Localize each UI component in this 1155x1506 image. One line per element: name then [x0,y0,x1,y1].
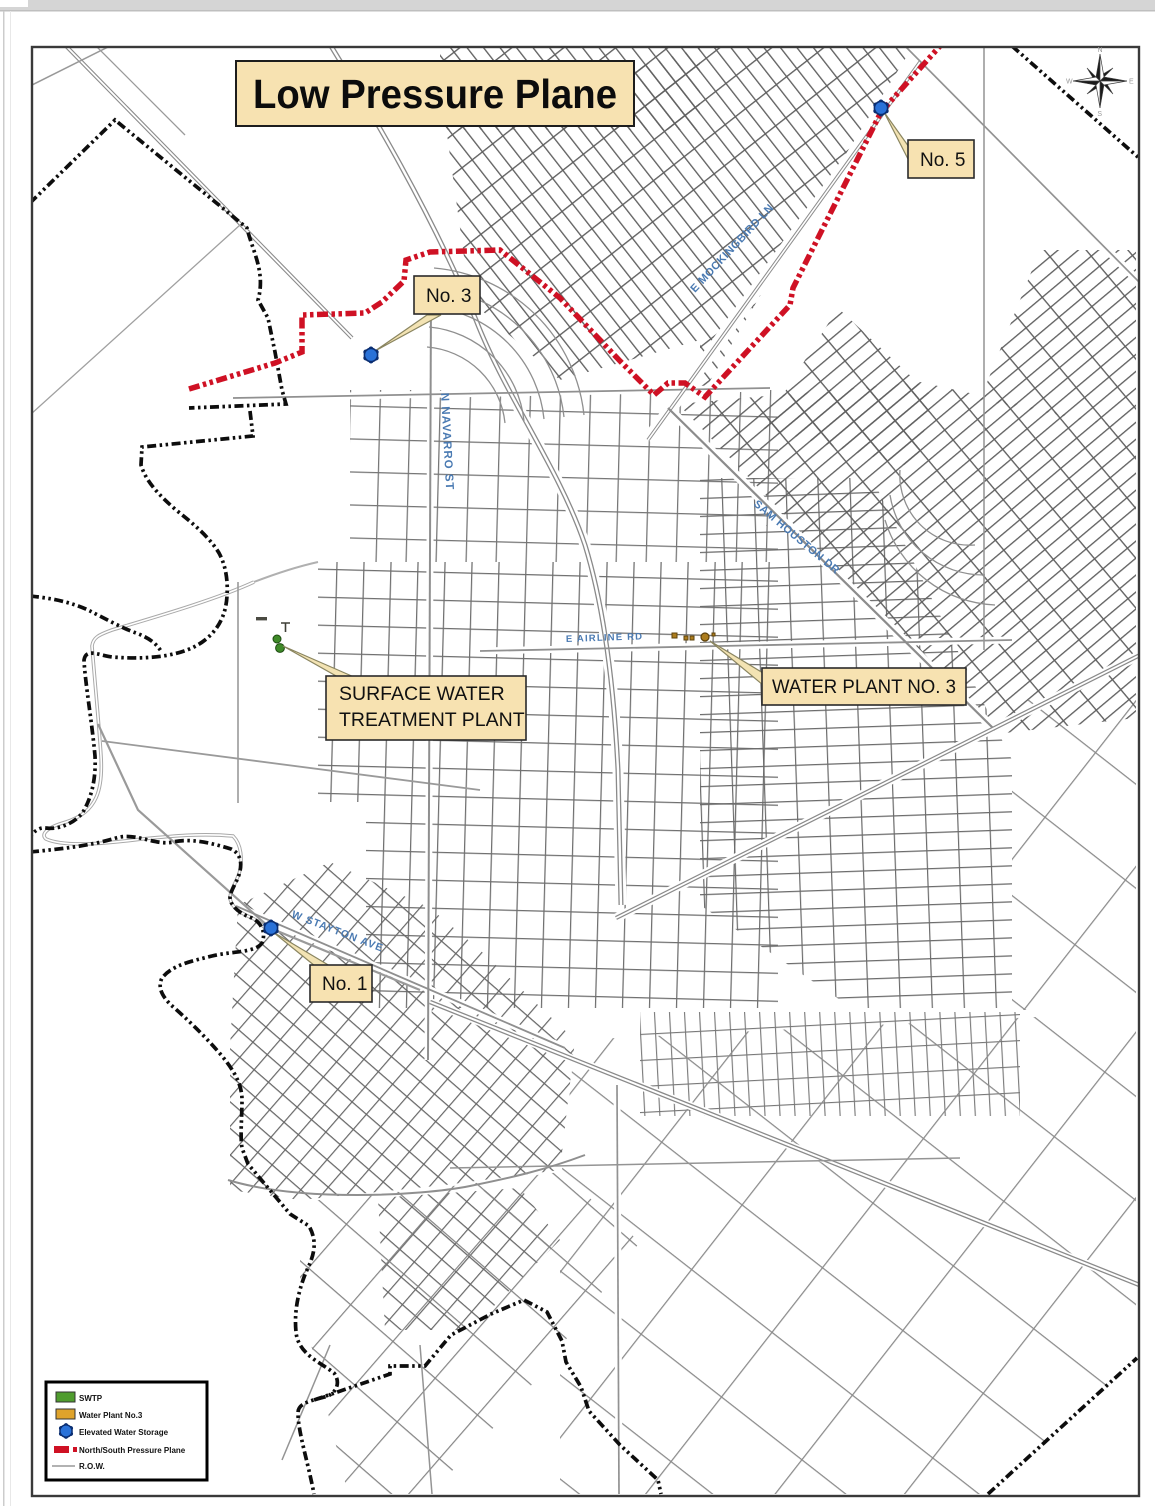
svg-text:No. 5: No. 5 [920,150,965,171]
svg-text:R.O.W.: R.O.W. [79,1462,105,1471]
svg-text:No. 1: No. 1 [322,974,367,995]
svg-text:Water Plant No.3: Water Plant No.3 [79,1411,143,1420]
svg-text:W: W [1066,79,1073,86]
svg-text:No. 3: No. 3 [426,286,471,307]
svg-text:Elevated Water Storage: Elevated Water Storage [79,1428,169,1437]
svg-text:North/South Pressure Plane: North/South Pressure Plane [79,1446,186,1455]
svg-text:TREATMENT PLANT: TREATMENT PLANT [339,709,525,731]
svg-text:SURFACE WATER: SURFACE WATER [339,683,505,705]
svg-text:Low Pressure Plane: Low Pressure Plane [253,71,617,117]
svg-text:WATER PLANT NO. 3: WATER PLANT NO. 3 [772,676,956,698]
svg-text:SWTP: SWTP [79,1394,103,1403]
svg-text:E: E [1129,79,1134,86]
svg-text:N: N [1098,47,1103,54]
svg-text:S: S [1097,111,1102,118]
